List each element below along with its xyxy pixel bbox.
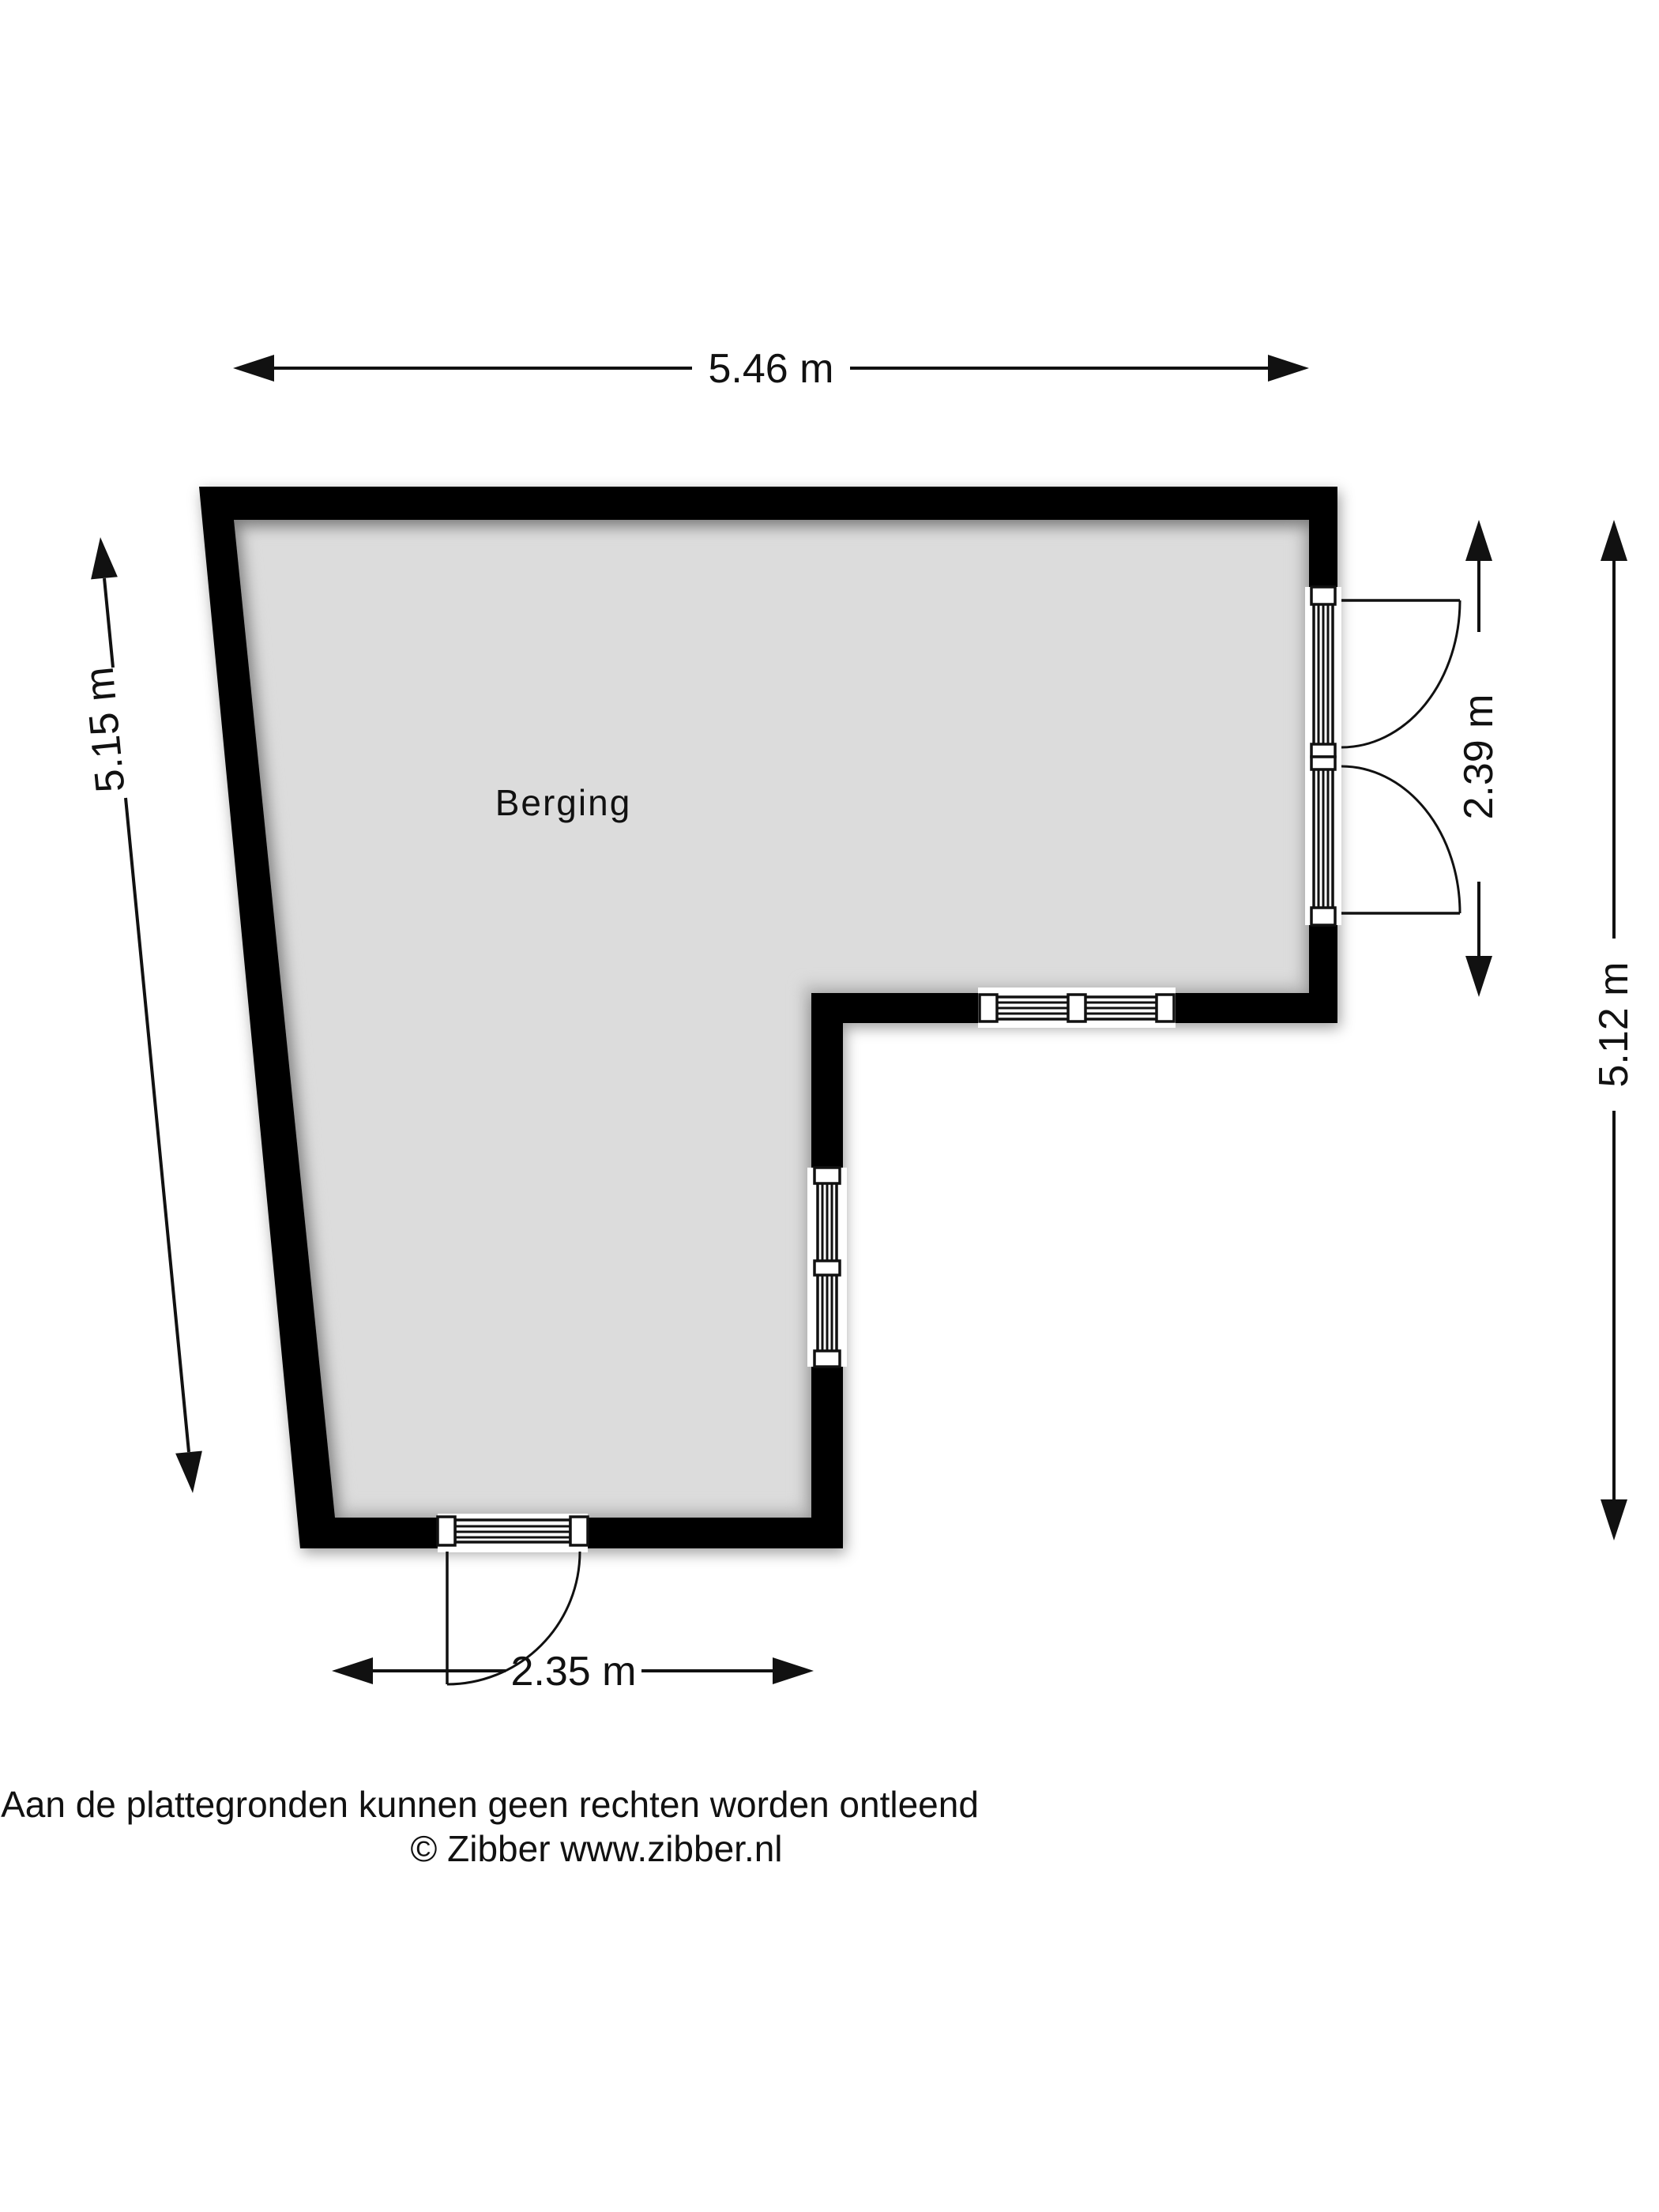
- dimension-label-bottom: 2.35 m: [511, 1649, 637, 1695]
- mid-wall-window: [978, 987, 1176, 1028]
- disclaimer-text: Aan de plattegronden kunnen geen rechten…: [1, 1784, 979, 1825]
- dimension-door-right: 2.39 m: [1456, 520, 1502, 997]
- dimension-bottom: 2.35 m: [332, 1649, 814, 1695]
- window-mullion: [1068, 995, 1085, 1021]
- door-jamb-top: [1311, 587, 1335, 604]
- copyright-text: © Zibber www.zibber.nl: [410, 1828, 782, 1869]
- window-jamb-right: [1157, 995, 1174, 1021]
- dimension-right: 5.12 m: [1591, 520, 1637, 1540]
- dimension-label-top: 5.46 m: [709, 346, 834, 392]
- dimension-top: 5.46 m: [233, 346, 1309, 392]
- room-label: Berging: [495, 782, 632, 823]
- arrowhead-down-icon: [1465, 956, 1492, 997]
- arrowhead-up-icon: [91, 537, 118, 579]
- door-mullion-upper: [1311, 744, 1335, 757]
- step-wall-window: [807, 1168, 847, 1367]
- door-jamb-left: [438, 1517, 455, 1545]
- door-swing-lower: [1341, 766, 1460, 913]
- dimension-label-left: 5.15 m: [77, 665, 134, 795]
- door-jamb-right: [570, 1517, 588, 1545]
- window-jamb-bottom: [814, 1351, 840, 1367]
- door-swing-upper: [1341, 600, 1460, 747]
- floorplan-canvas: 5.46 m 5.15 m 2.39 m 5.12 m 2.35 m Bergi…: [0, 0, 1659, 2212]
- arrowhead-left-icon: [233, 355, 274, 382]
- arrowhead-down-icon: [1601, 1499, 1627, 1540]
- window-mullion: [814, 1261, 840, 1275]
- door-mullion-lower: [1311, 757, 1335, 769]
- right-double-door: [1305, 587, 1460, 925]
- floorplan-page: 5.46 m 5.15 m 2.39 m 5.12 m 2.35 m Bergi…: [0, 0, 1659, 2212]
- arrowhead-left-icon: [332, 1657, 373, 1684]
- arrowhead-up-icon: [1465, 520, 1492, 561]
- arrowhead-down-icon: [175, 1451, 202, 1493]
- door-jamb-bottom: [1311, 908, 1335, 925]
- arrowhead-right-icon: [1268, 355, 1309, 382]
- dimension-label-right: 5.12 m: [1591, 962, 1637, 1088]
- window-jamb-top: [814, 1168, 840, 1183]
- window-jamb-left: [980, 995, 997, 1021]
- arrowhead-right-icon: [773, 1657, 814, 1684]
- dimension-label-door-right: 2.39 m: [1456, 694, 1502, 820]
- dimension-left: 5.15 m: [77, 537, 202, 1493]
- footer: Aan de plattegronden kunnen geen rechten…: [1, 1784, 979, 1869]
- arrowhead-up-icon: [1601, 520, 1627, 561]
